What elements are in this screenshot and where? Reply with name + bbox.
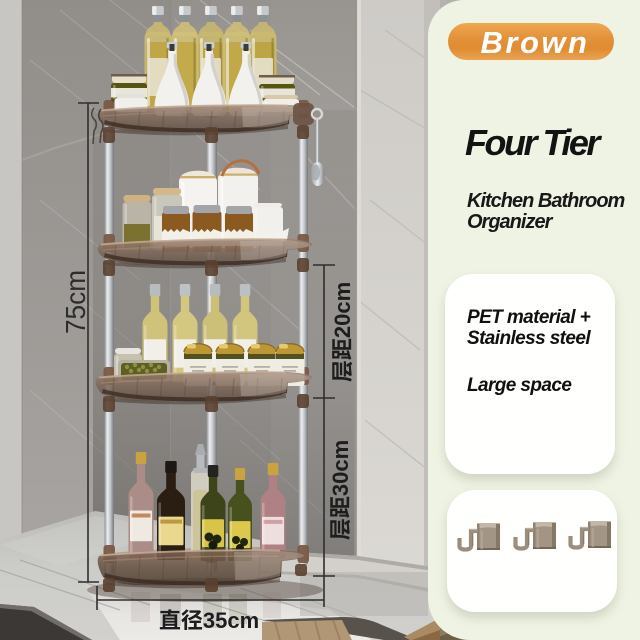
svg-text:30cm: 30cm	[328, 440, 353, 496]
svg-text:20cm: 20cm	[330, 282, 355, 338]
svg-text:75cm: 75cm	[60, 270, 91, 334]
svg-text:35cm: 35cm	[203, 608, 259, 633]
